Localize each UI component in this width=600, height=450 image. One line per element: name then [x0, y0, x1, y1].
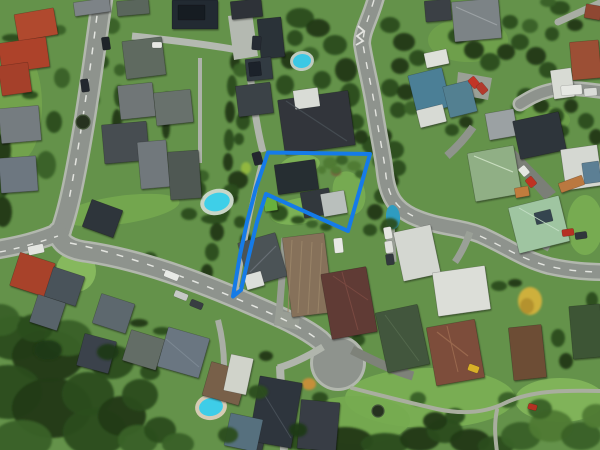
building-roof [248, 61, 261, 76]
tree-canopy [122, 379, 158, 411]
tree-canopy [223, 153, 233, 171]
tree-canopy [291, 216, 305, 224]
building-roof [0, 62, 32, 96]
building-roof [137, 140, 170, 189]
building-roof [235, 82, 274, 117]
parked-vehicle [384, 241, 394, 254]
tree-canopy [54, 68, 70, 88]
parked-vehicle [575, 231, 588, 240]
parked-vehicle [561, 84, 583, 95]
tree-canopy [97, 344, 119, 360]
tree-canopy [318, 166, 326, 174]
tree-canopy [390, 102, 406, 118]
walking-path [495, 410, 497, 450]
tree-canopy [564, 99, 578, 113]
tree-canopy [508, 279, 522, 287]
tree-canopy [259, 351, 273, 361]
tree-canopy [480, 53, 500, 71]
tree-canopy [114, 64, 126, 76]
tree-canopy [491, 281, 507, 291]
trampoline [76, 115, 90, 129]
tree-canopy [526, 47, 546, 65]
building-roof [451, 0, 501, 42]
building-roof [0, 105, 41, 143]
tree-canopy [522, 19, 538, 33]
tree-canopy [367, 204, 383, 220]
tree-canopy [363, 224, 377, 236]
tree-canopy [225, 101, 235, 123]
building-roof [167, 150, 201, 200]
tree-canopy [336, 155, 348, 165]
parked-vehicle [152, 42, 162, 48]
tree-canopy [248, 385, 268, 399]
tree-canopy [224, 129, 234, 151]
tree-canopy [393, 33, 415, 51]
tree-canopy [276, 75, 294, 95]
tree-canopy [551, 329, 565, 347]
tree-canopy [287, 30, 303, 46]
trampoline [372, 405, 384, 417]
building-roof [467, 145, 522, 201]
tree-canopy [331, 166, 341, 174]
tree-canopy [391, 58, 409, 74]
tree-canopy [289, 423, 307, 437]
parked-vehicle [333, 238, 344, 254]
tree-canopy [567, 19, 583, 31]
tree-canopy [181, 208, 197, 220]
parked-vehicle [252, 36, 262, 51]
tree-canopy [130, 319, 148, 327]
parked-vehicle [562, 228, 575, 237]
tree-canopy [497, 44, 515, 60]
building-roof [508, 324, 546, 380]
satellite-imagery [0, 0, 600, 450]
tree-canopy [381, 79, 399, 97]
tree-canopy [520, 298, 534, 314]
tree-canopy [34, 340, 62, 360]
tree-canopy [545, 27, 559, 41]
parked-vehicle [80, 79, 90, 93]
tree-canopy [511, 34, 529, 50]
tree-canopy [464, 41, 484, 59]
tree-canopy [445, 124, 459, 136]
building-roof [0, 156, 38, 193]
parked-vehicle [385, 253, 394, 265]
building-roof [569, 40, 600, 80]
building-roof [153, 89, 193, 126]
parked-vehicle [101, 37, 111, 51]
building-roof [117, 82, 155, 119]
building-roof [274, 159, 319, 194]
building-roof [432, 266, 491, 317]
building-roof [230, 0, 263, 20]
tree-canopy [559, 353, 573, 369]
building-roof [424, 0, 452, 22]
tree-canopy [354, 130, 368, 144]
tree-canopy [380, 17, 400, 33]
tree-canopy [313, 71, 331, 89]
tree-canopy [306, 19, 330, 37]
tree-canopy [302, 378, 316, 390]
building-roof [569, 304, 600, 360]
tree-canopy [423, 412, 447, 430]
tree-canopy [210, 223, 224, 241]
building-roof [584, 4, 600, 21]
tree-canopy [306, 220, 318, 228]
building-roof [116, 0, 149, 16]
tree-canopy [46, 111, 62, 133]
tree-canopy [234, 133, 244, 145]
tree-canopy [323, 35, 347, 55]
tree-canopy [502, 15, 518, 29]
building-roof [582, 161, 600, 184]
building-roof [320, 190, 348, 217]
building-roof [426, 319, 485, 386]
tree-canopy [36, 151, 56, 179]
tree-canopy [335, 58, 357, 82]
tree-canopy [347, 161, 361, 171]
tree-canopy [409, 50, 427, 66]
building-roof [514, 186, 530, 198]
building-roof [293, 87, 320, 109]
tree-canopy [578, 113, 594, 129]
parked-vehicle [584, 88, 598, 97]
aerial-map-view[interactable] [0, 0, 600, 450]
tree-canopy [205, 243, 219, 261]
tree-canopy [218, 427, 238, 443]
building-roof [178, 5, 205, 20]
